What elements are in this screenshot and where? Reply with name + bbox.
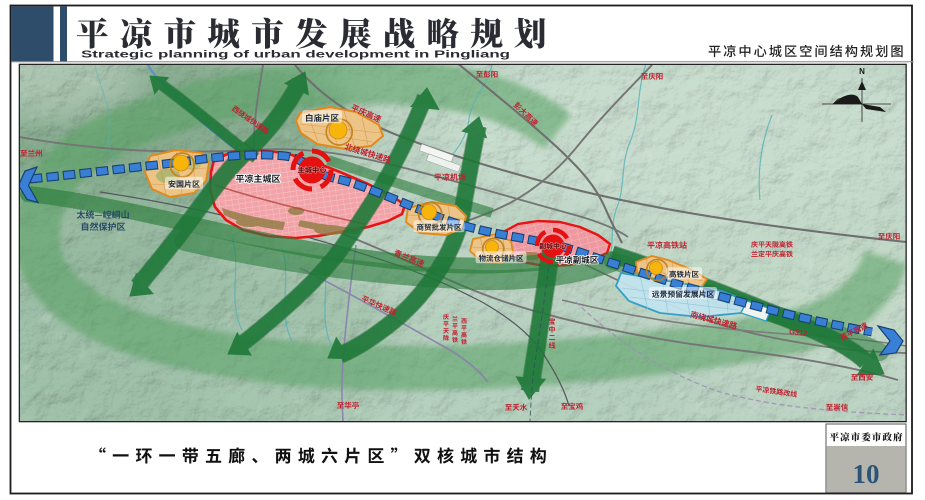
svg-text:Strategic planning of urban de: Strategic planning of urban development …: [81, 50, 510, 61]
svg-text:10: 10: [853, 459, 880, 489]
svg-text:N: N: [859, 67, 865, 76]
svg-text:G312: G312: [789, 327, 808, 338]
